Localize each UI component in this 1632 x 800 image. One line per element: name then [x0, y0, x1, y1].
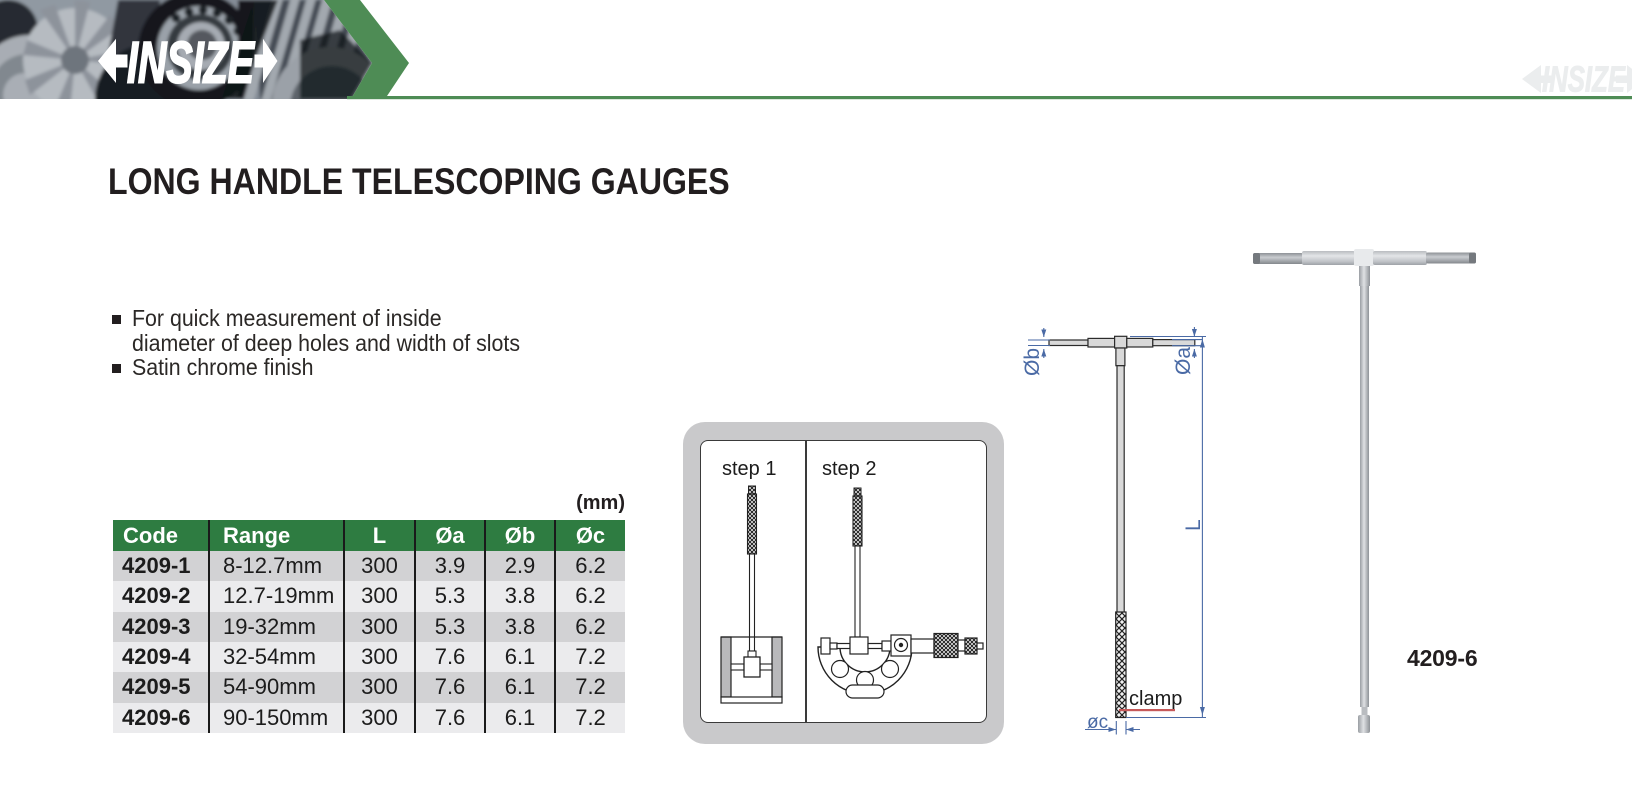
svg-text:INSIZE: INSIZE [1542, 59, 1626, 100]
svg-text:Øa: Øa [1172, 347, 1195, 375]
svg-text:clamp: clamp [1129, 688, 1182, 710]
svg-text:Øb: Øb [1021, 348, 1044, 376]
svg-text:L: L [1182, 519, 1205, 531]
svg-text:INSIZE: INSIZE [127, 31, 256, 96]
svg-text:øc: øc [1087, 712, 1108, 733]
